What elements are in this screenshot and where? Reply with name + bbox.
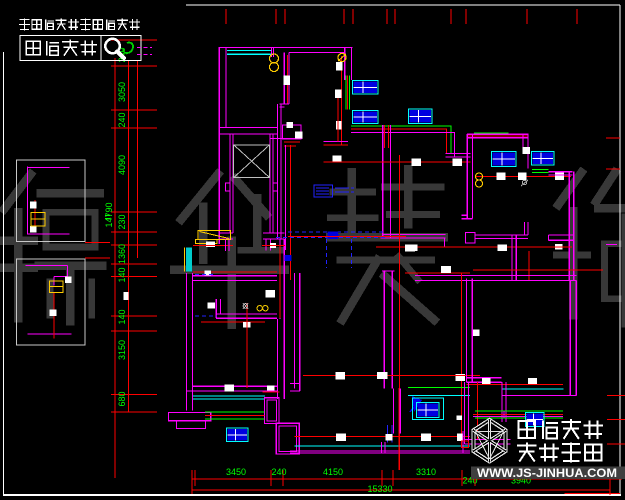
- svg-text:1360: 1360: [117, 244, 127, 264]
- svg-text:WWW.JS-JINHUA.COM: WWW.JS-JINHUA.COM: [477, 468, 617, 480]
- svg-text:3150: 3150: [117, 340, 127, 360]
- svg-text:140: 140: [117, 309, 127, 324]
- svg-text:140: 140: [117, 267, 127, 282]
- svg-text:230: 230: [117, 214, 127, 229]
- svg-text:3450: 3450: [226, 467, 246, 477]
- svg-text:15330: 15330: [367, 484, 392, 494]
- svg-text:240: 240: [271, 467, 286, 477]
- svg-text:4150: 4150: [323, 467, 343, 477]
- svg-text:3310: 3310: [416, 467, 436, 477]
- svg-text:3050: 3050: [117, 82, 127, 102]
- svg-text:240: 240: [117, 112, 127, 127]
- svg-text:4090: 4090: [117, 155, 127, 175]
- svg-text:680: 680: [117, 391, 127, 406]
